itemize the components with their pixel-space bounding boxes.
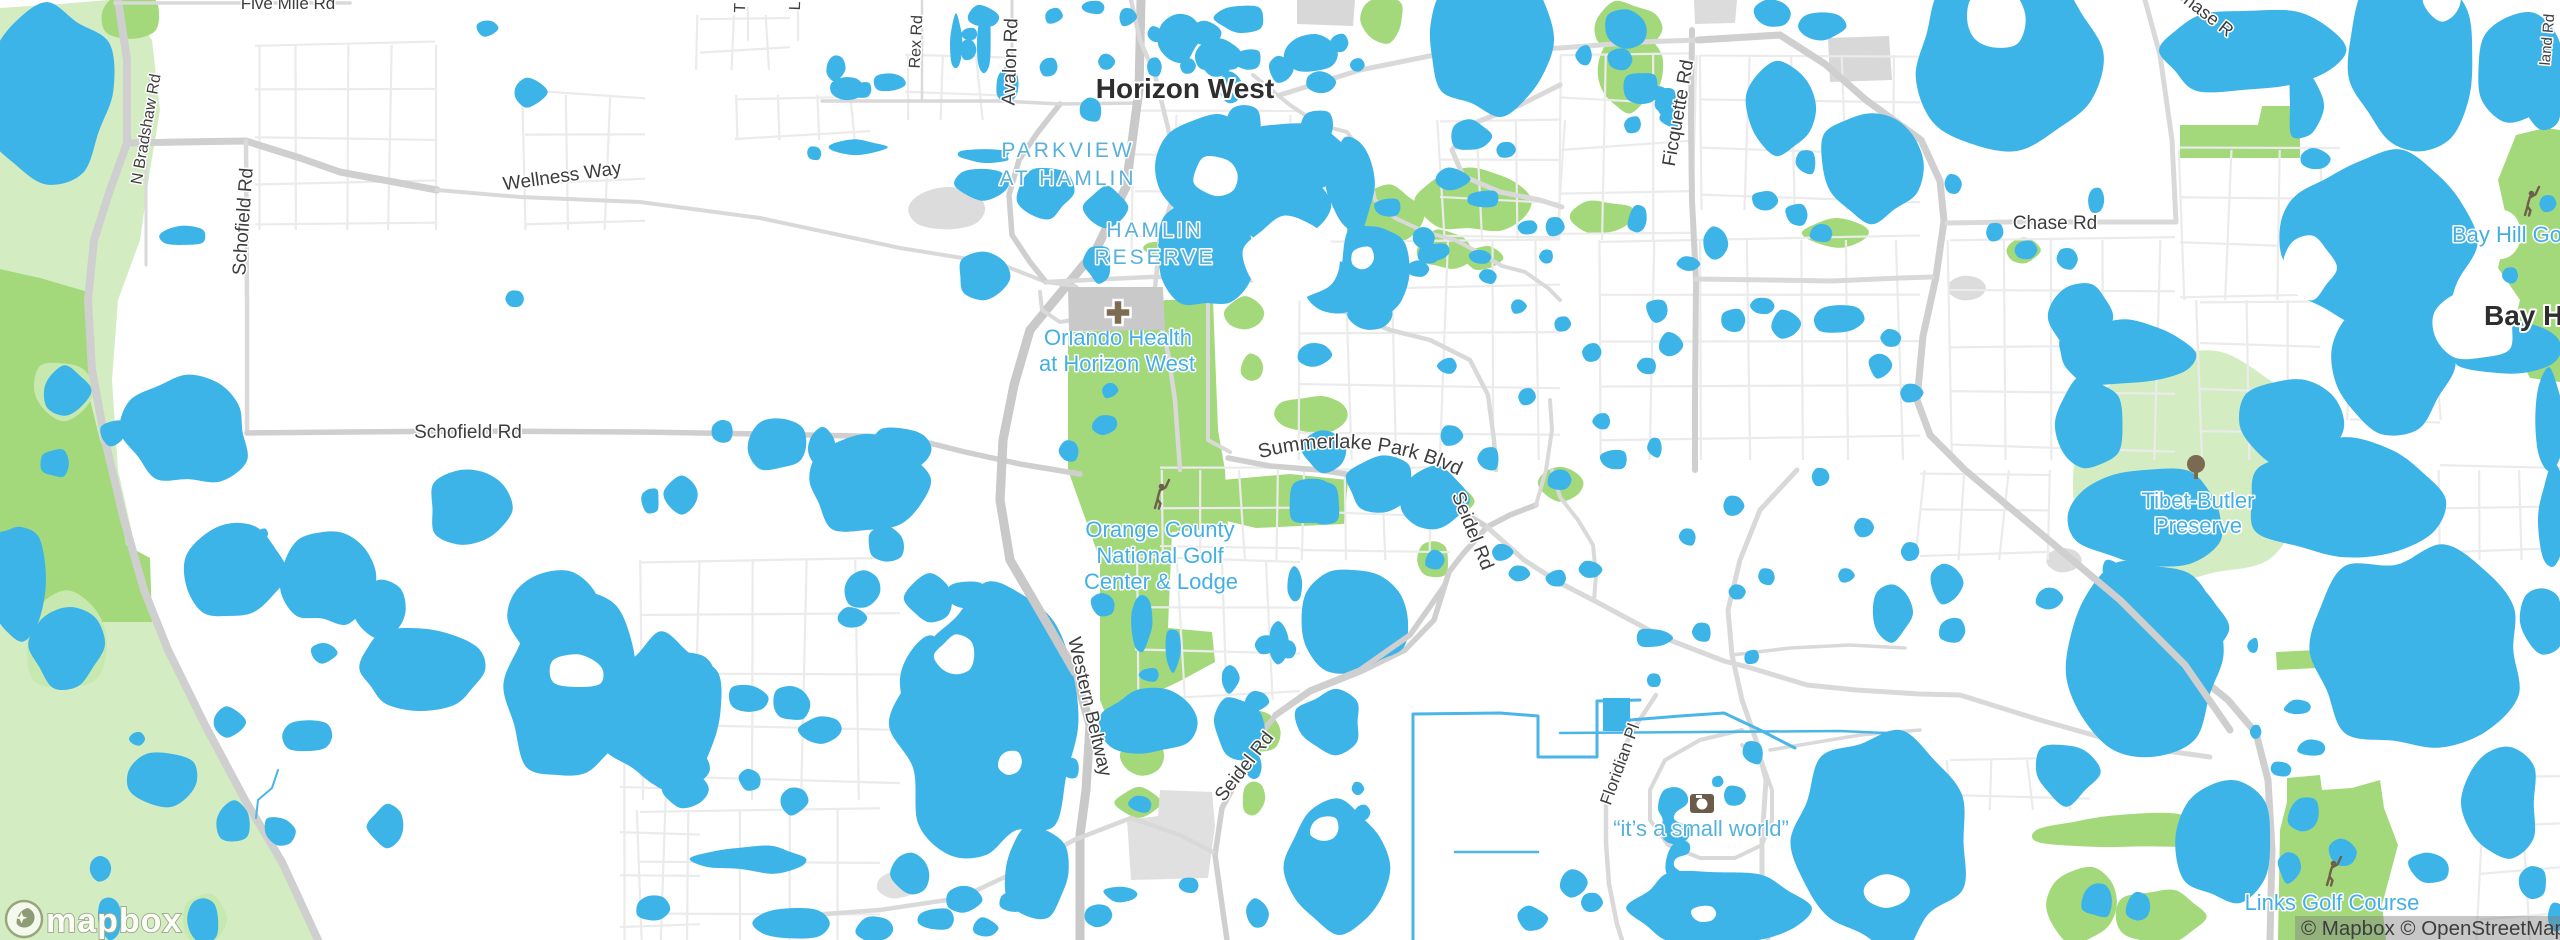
svg-text:Orange County: Orange County xyxy=(1085,517,1234,542)
svg-text:Rex Rd: Rex Rd xyxy=(907,15,927,69)
svg-text:PARKVIEW: PARKVIEW xyxy=(1001,139,1134,162)
svg-text:Five Mile Rd: Five Mile Rd xyxy=(241,0,335,13)
svg-text:RESERVE: RESERVE xyxy=(1095,246,1216,269)
svg-text:Schofield Rd: Schofield Rd xyxy=(414,422,522,443)
svg-text:HAMLIN: HAMLIN xyxy=(1106,219,1203,242)
svg-text:Tibet-Butler: Tibet-Butler xyxy=(2142,488,2255,513)
svg-text:Center & Lodge: Center & Lodge xyxy=(1084,569,1238,594)
svg-text:Avalon Rd: Avalon Rd xyxy=(998,18,1022,106)
svg-text:“it’s a small world”: “it’s a small world” xyxy=(1613,816,1789,841)
svg-text:Preserve: Preserve xyxy=(2154,513,2242,538)
svg-text:Chase Rd: Chase Rd xyxy=(2013,213,2098,234)
svg-text:Horizon West: Horizon West xyxy=(1096,73,1274,104)
svg-text:Links Golf Course: Links Golf Course xyxy=(2245,890,2420,915)
svg-text:L: L xyxy=(787,1,804,11)
svg-text:© Mapbox © OpenStreetMap: © Mapbox © OpenStreetMap xyxy=(2301,917,2560,940)
svg-text:mapbox: mapbox xyxy=(46,902,182,940)
svg-text:Bay Hill Gol: Bay Hill Gol xyxy=(2452,222,2560,247)
svg-text:National Golf: National Golf xyxy=(1096,543,1224,568)
svg-text:at Horizon West: at Horizon West xyxy=(1039,351,1195,376)
svg-text:AT HAMLIN: AT HAMLIN xyxy=(999,167,1136,190)
svg-text:T: T xyxy=(732,2,749,13)
svg-text:Bay Hill: Bay Hill xyxy=(2484,300,2560,331)
